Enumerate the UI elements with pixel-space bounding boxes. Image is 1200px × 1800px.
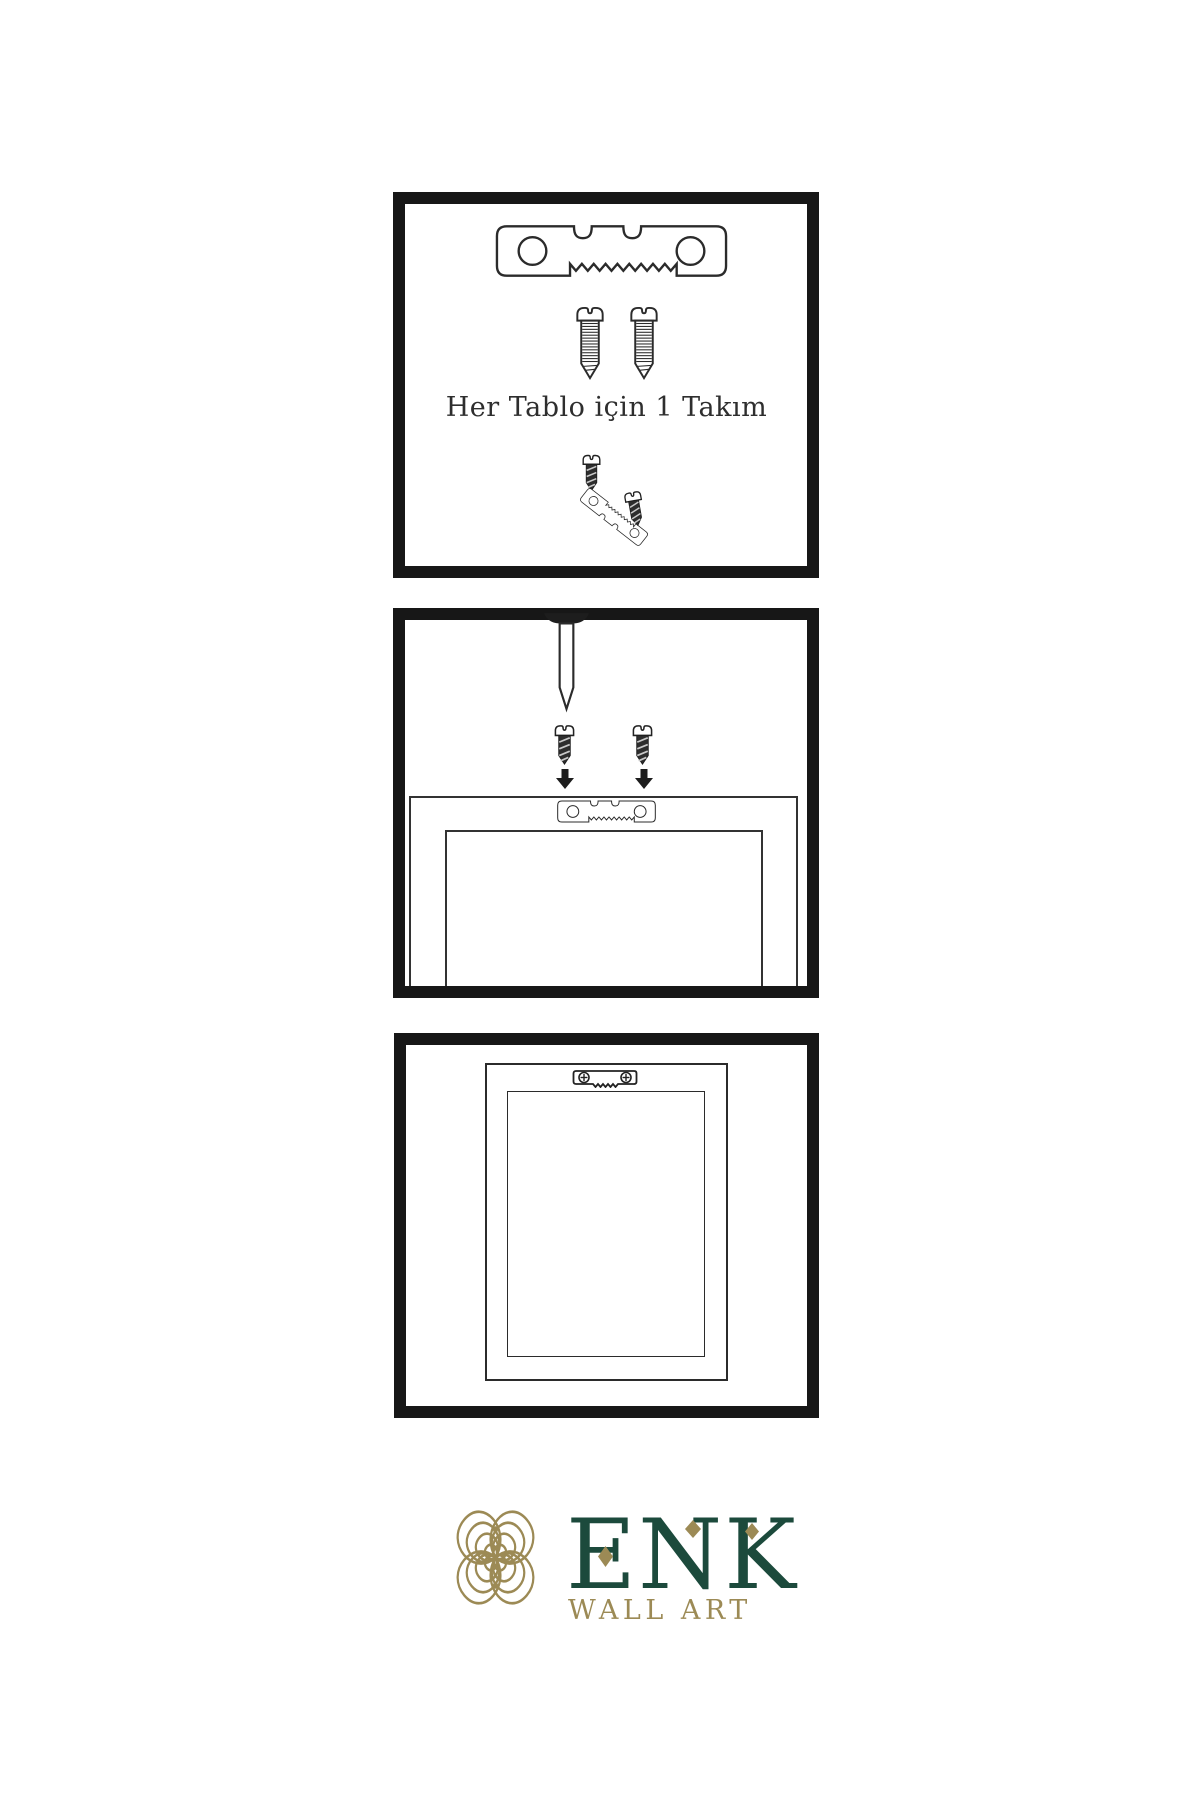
wall-nail-icon	[544, 612, 589, 716]
frame-back-inner-outline	[445, 830, 763, 986]
knot-logo-icon	[438, 1488, 553, 1627]
dark-screw-icon	[553, 723, 576, 767]
sawtooth-hanger-icon	[556, 800, 657, 823]
instruction-sheet: Her Tablo için 1 Takım ENK WALL ART	[0, 0, 1200, 1800]
dark-screw-icon	[631, 723, 654, 767]
step1-caption: Her Tablo için 1 Takım	[406, 392, 807, 423]
frame-inner-outline	[507, 1091, 705, 1357]
brand-tagline: WALL ART	[568, 1597, 752, 1624]
screw-icon	[626, 305, 662, 381]
phillips-hanger-icon	[572, 1069, 638, 1088]
down-arrow-icon	[635, 769, 653, 789]
sawtooth-hanger-icon	[493, 224, 730, 278]
screw-icon	[572, 305, 608, 381]
down-arrow-icon	[556, 769, 574, 789]
